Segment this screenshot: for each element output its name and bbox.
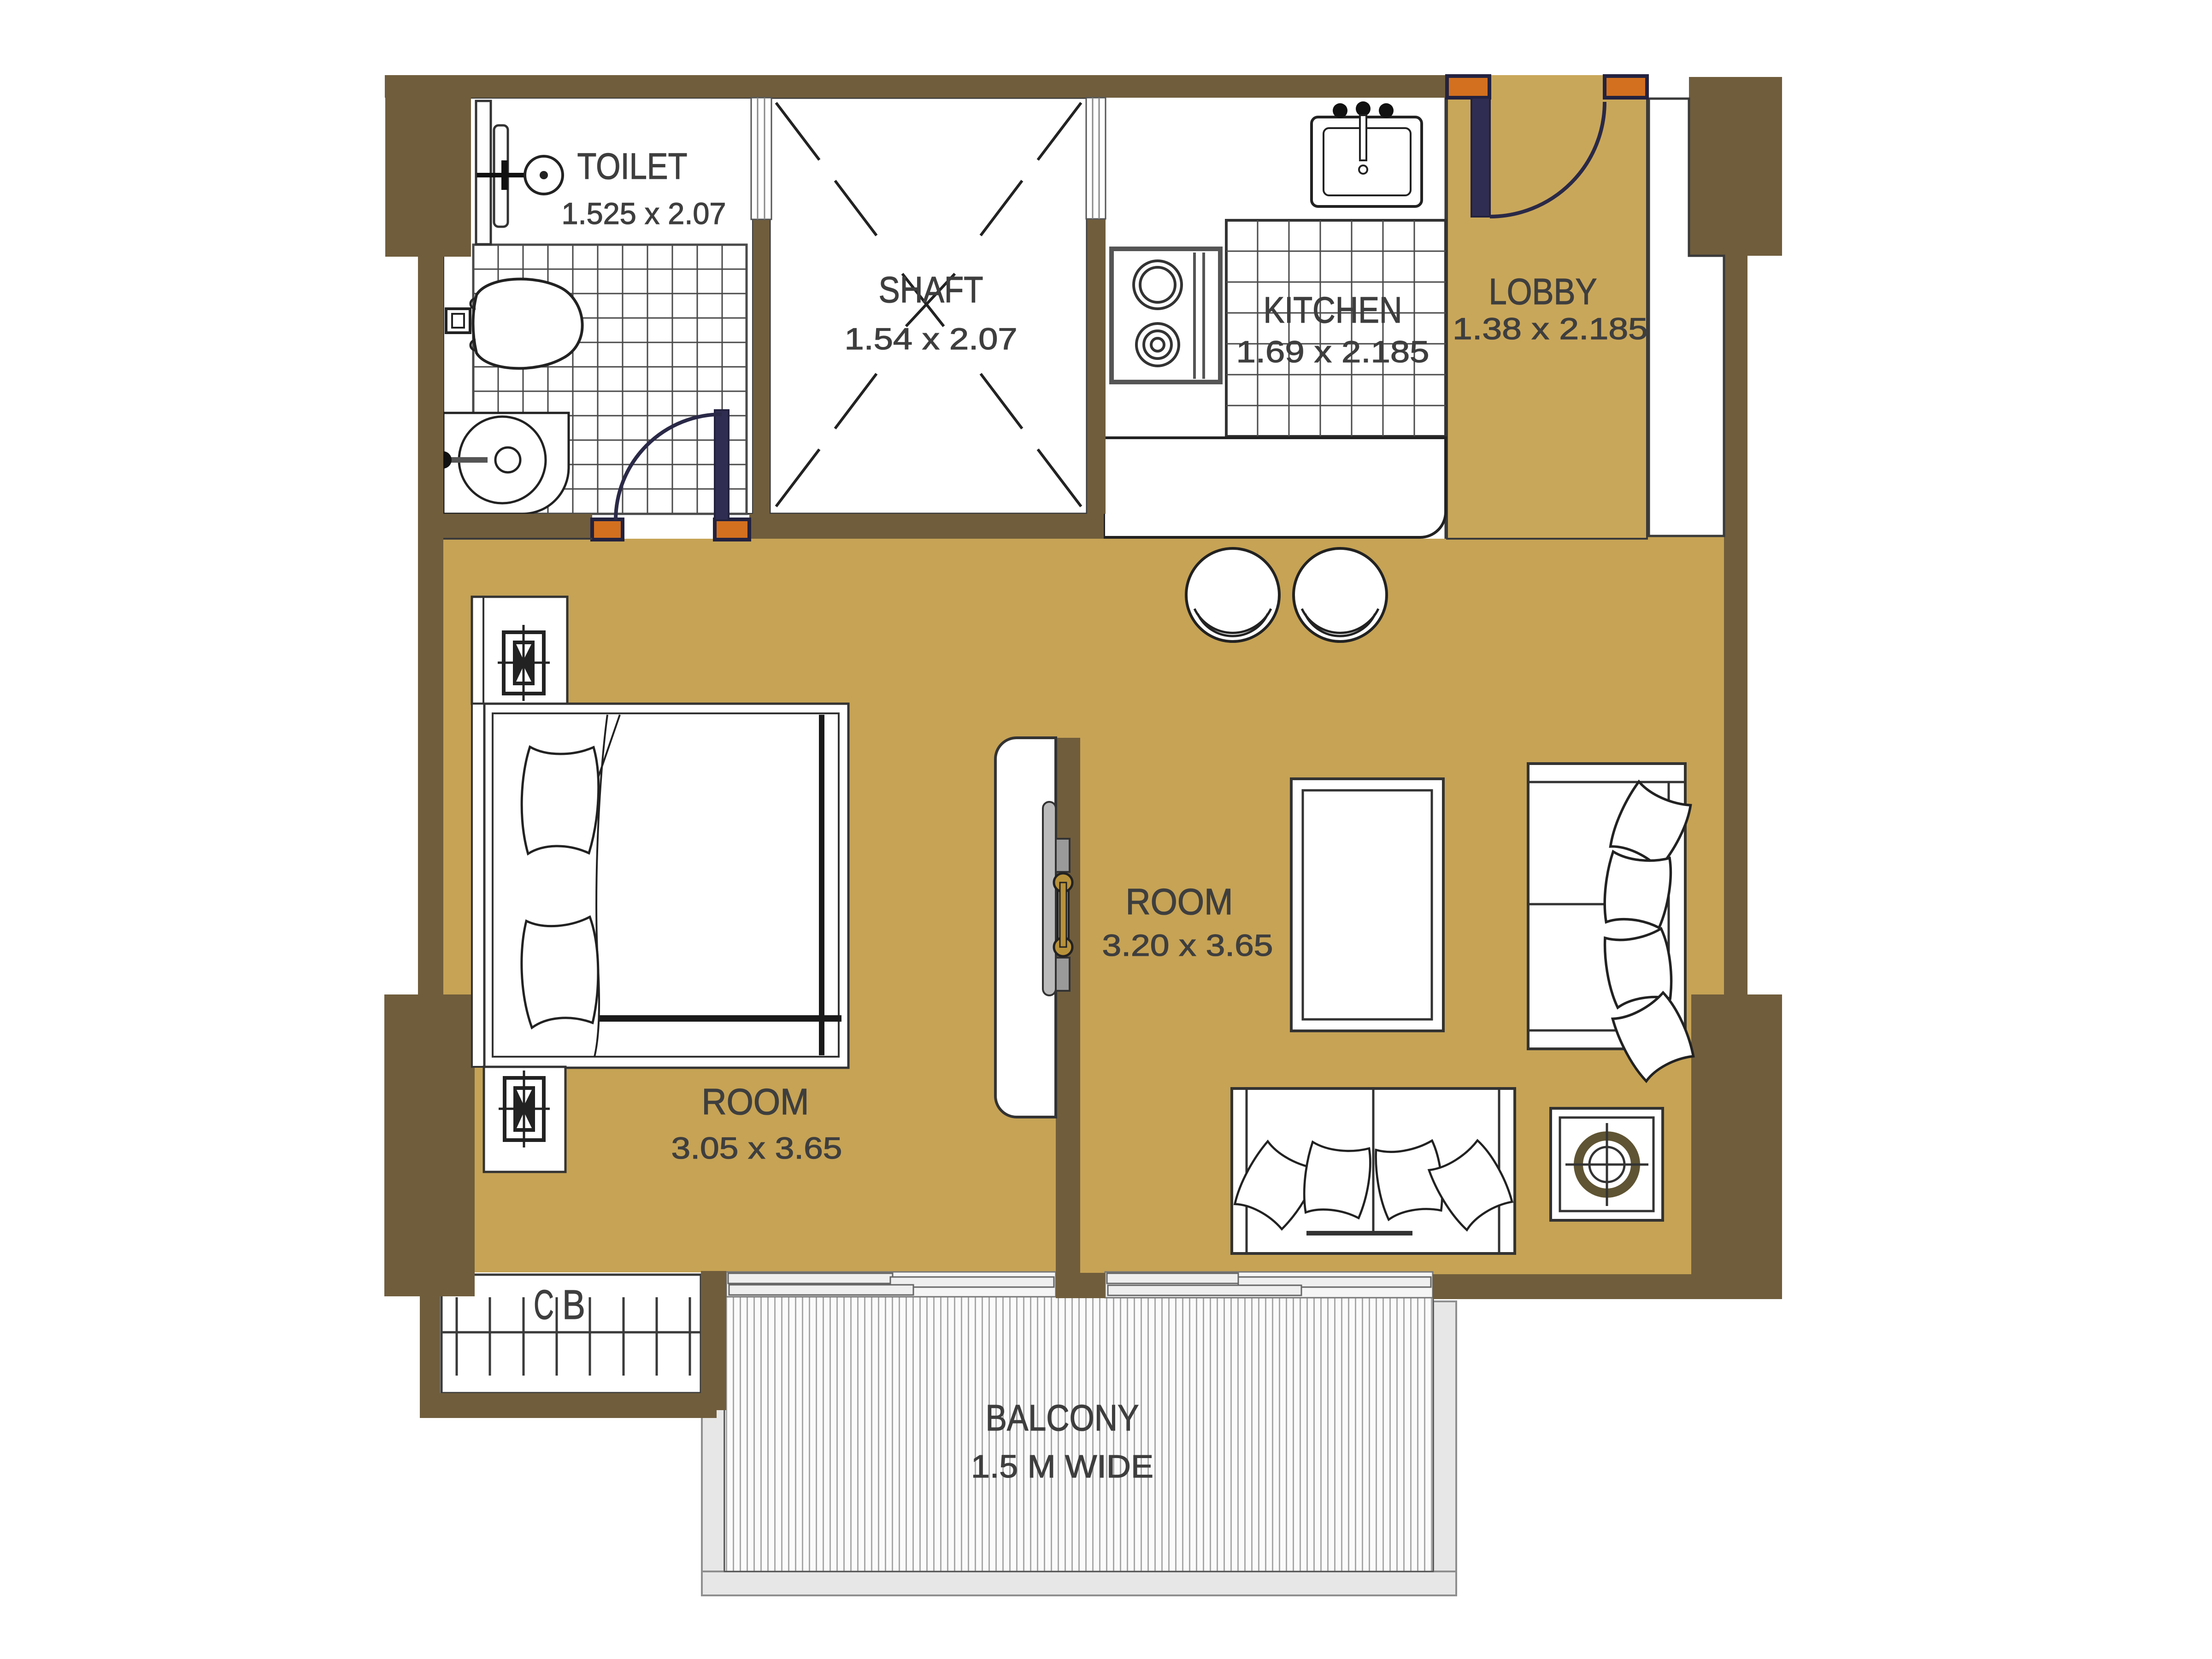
svg-text:1.525 x 2.07: 1.525 x 2.07 [562, 196, 726, 230]
svg-text:1.38 x 2.185: 1.38 x 2.185 [1453, 312, 1648, 346]
svg-text:1.5 M WIDE: 1.5 M WIDE [971, 1448, 1153, 1484]
svg-text:ROOM: ROOM [702, 1081, 809, 1122]
svg-text:SHAFT: SHAFT [879, 269, 983, 310]
svg-text:1.54 x 2.07: 1.54 x 2.07 [845, 322, 1018, 356]
svg-text:3.05 x 3.65: 3.05 x 3.65 [671, 1131, 842, 1165]
svg-text:ROOM: ROOM [1126, 881, 1233, 922]
svg-text:1.69 x 2.185: 1.69 x 2.185 [1236, 335, 1430, 369]
svg-text:BALCONY: BALCONY [986, 1397, 1139, 1438]
svg-text:LOBBY: LOBBY [1489, 271, 1597, 312]
svg-text:B: B [562, 1282, 585, 1328]
svg-text:KITCHEN: KITCHEN [1264, 289, 1402, 330]
svg-text:3.20 x 3.65: 3.20 x 3.65 [1102, 928, 1273, 962]
svg-text:TOILET: TOILET [577, 146, 688, 187]
svg-text:C: C [534, 1282, 554, 1328]
